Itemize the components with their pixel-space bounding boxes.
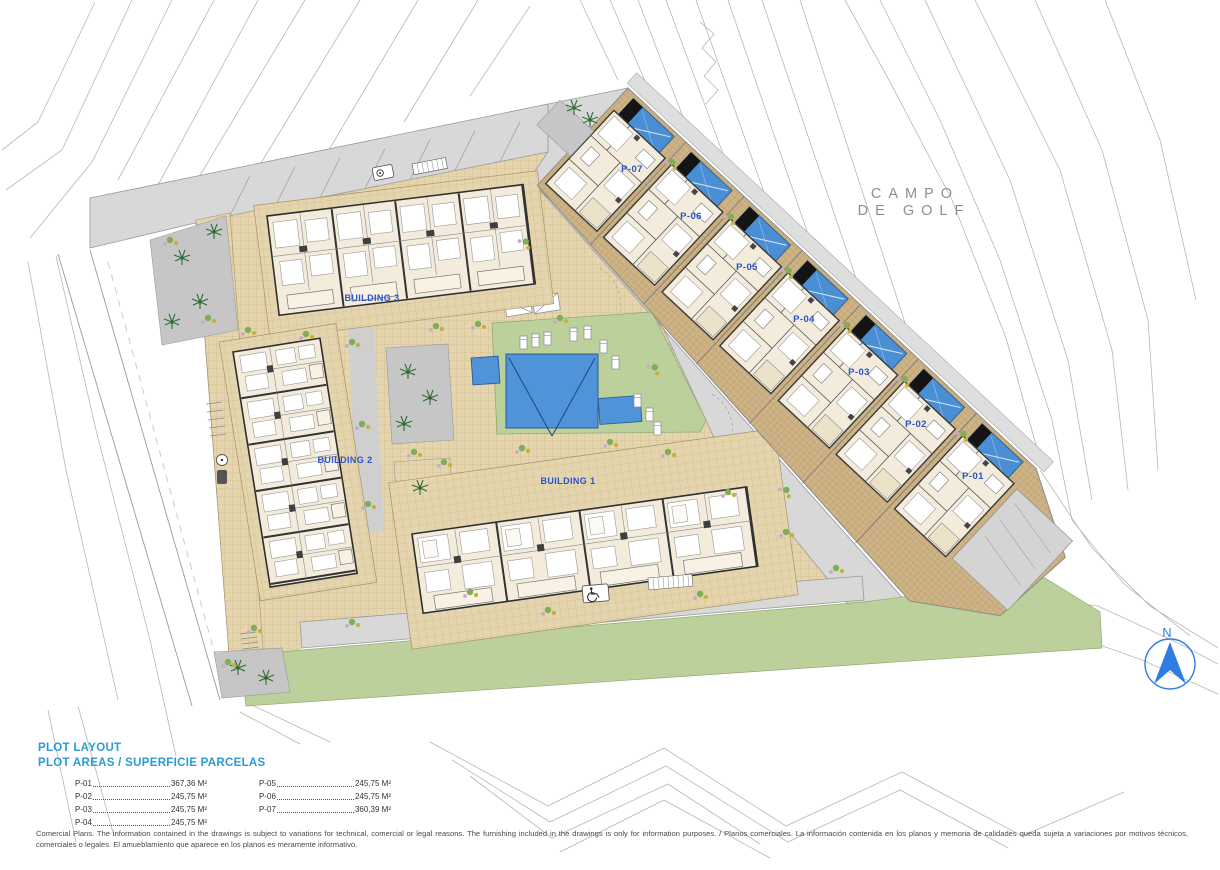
planted-square-top	[386, 344, 454, 444]
legend-column-1: P-01 367,36 M² P-02 245,75 M² P-03 245,7…	[75, 777, 207, 829]
plot-label-p01: P-01	[962, 471, 984, 482]
plot-label-p05: P-05	[736, 262, 758, 273]
building-1-label: BUILDING 1	[540, 476, 595, 486]
plot-area-value: 245,75 M²	[355, 790, 391, 803]
plot-id: P-02	[75, 790, 92, 803]
north-compass: N	[1145, 625, 1195, 689]
dot-leader	[277, 786, 354, 787]
legend-row-p07: P-07 360,39 M²	[259, 803, 391, 816]
golf-course-label-line1: CAMPO	[871, 186, 959, 202]
accessible-parking-icon	[582, 584, 609, 603]
legend-title: PLOT LAYOUT	[38, 741, 391, 756]
plot-legend: PLOT LAYOUT PLOT AREAS / SUPERFICIE PARC…	[38, 741, 391, 829]
dot-leader	[93, 825, 170, 826]
plot-id: P-03	[75, 803, 92, 816]
legend-row-p03: P-03 245,75 M²	[75, 803, 207, 816]
dot-leader	[277, 799, 354, 800]
plot-id: P-04	[75, 816, 92, 829]
dot-leader	[93, 812, 170, 813]
plot-area-value: 245,75 M²	[171, 816, 207, 829]
bottom-left-planter	[214, 648, 290, 698]
legend-subtitle: PLOT AREAS / SUPERFICIE PARCELAS	[38, 756, 391, 771]
legend-table: P-01 367,36 M² P-02 245,75 M² P-03 245,7…	[75, 777, 391, 829]
dot-leader	[93, 786, 170, 787]
plot-id: P-07	[259, 803, 276, 816]
legend-column-2: P-05 245,75 M² P-06 245,75 M² P-07 360,3…	[259, 777, 391, 829]
legend-row-p04: P-04 245,75 M²	[75, 816, 207, 829]
legend-row-p01: P-01 367,36 M²	[75, 777, 207, 790]
north-label: N	[1162, 625, 1171, 640]
plot-area-value: 245,75 M²	[171, 803, 207, 816]
legend-row-p06: P-06 245,75 M²	[259, 790, 391, 803]
main-swimming-pool	[506, 354, 598, 428]
dot-leader	[93, 799, 170, 800]
plot-area-value: 245,75 M²	[355, 777, 391, 790]
plot-id: P-05	[259, 777, 276, 790]
small-pool-left	[471, 356, 500, 385]
disclaimer-text: Comercial Plans. The information contain…	[36, 829, 1188, 850]
plot-area-value: 360,39 M²	[355, 803, 391, 816]
legend-row-p05: P-05 245,75 M²	[259, 777, 391, 790]
site-plan-drawing: BUILDING 3 BUILDING 2 BUILDING 1 P-07 P-…	[0, 0, 1220, 870]
north-arrow-icon	[1154, 642, 1186, 684]
plot-label-p03: P-03	[848, 367, 870, 378]
plot-label-p07: P-07	[621, 164, 643, 175]
site-plan-page: BUILDING 3 BUILDING 2 BUILDING 1 P-07 P-…	[0, 0, 1220, 870]
legend-row-p02: P-02 245,75 M²	[75, 790, 207, 803]
golf-course-label-line2: DE GOLF	[858, 203, 971, 219]
plot-label-p02: P-02	[905, 419, 927, 430]
dot-leader	[277, 812, 354, 813]
plot-label-p06: P-06	[680, 211, 702, 222]
building-3-label: BUILDING 3	[344, 293, 399, 303]
plot-label-p04: P-04	[793, 314, 815, 325]
top-left-garden	[150, 216, 238, 345]
building-2-label: BUILDING 2	[317, 455, 372, 465]
plot-area-value: 367,36 M²	[171, 777, 207, 790]
plot-area-value: 245,75 M²	[171, 790, 207, 803]
plot-id: P-06	[259, 790, 276, 803]
plot-id: P-01	[75, 777, 92, 790]
